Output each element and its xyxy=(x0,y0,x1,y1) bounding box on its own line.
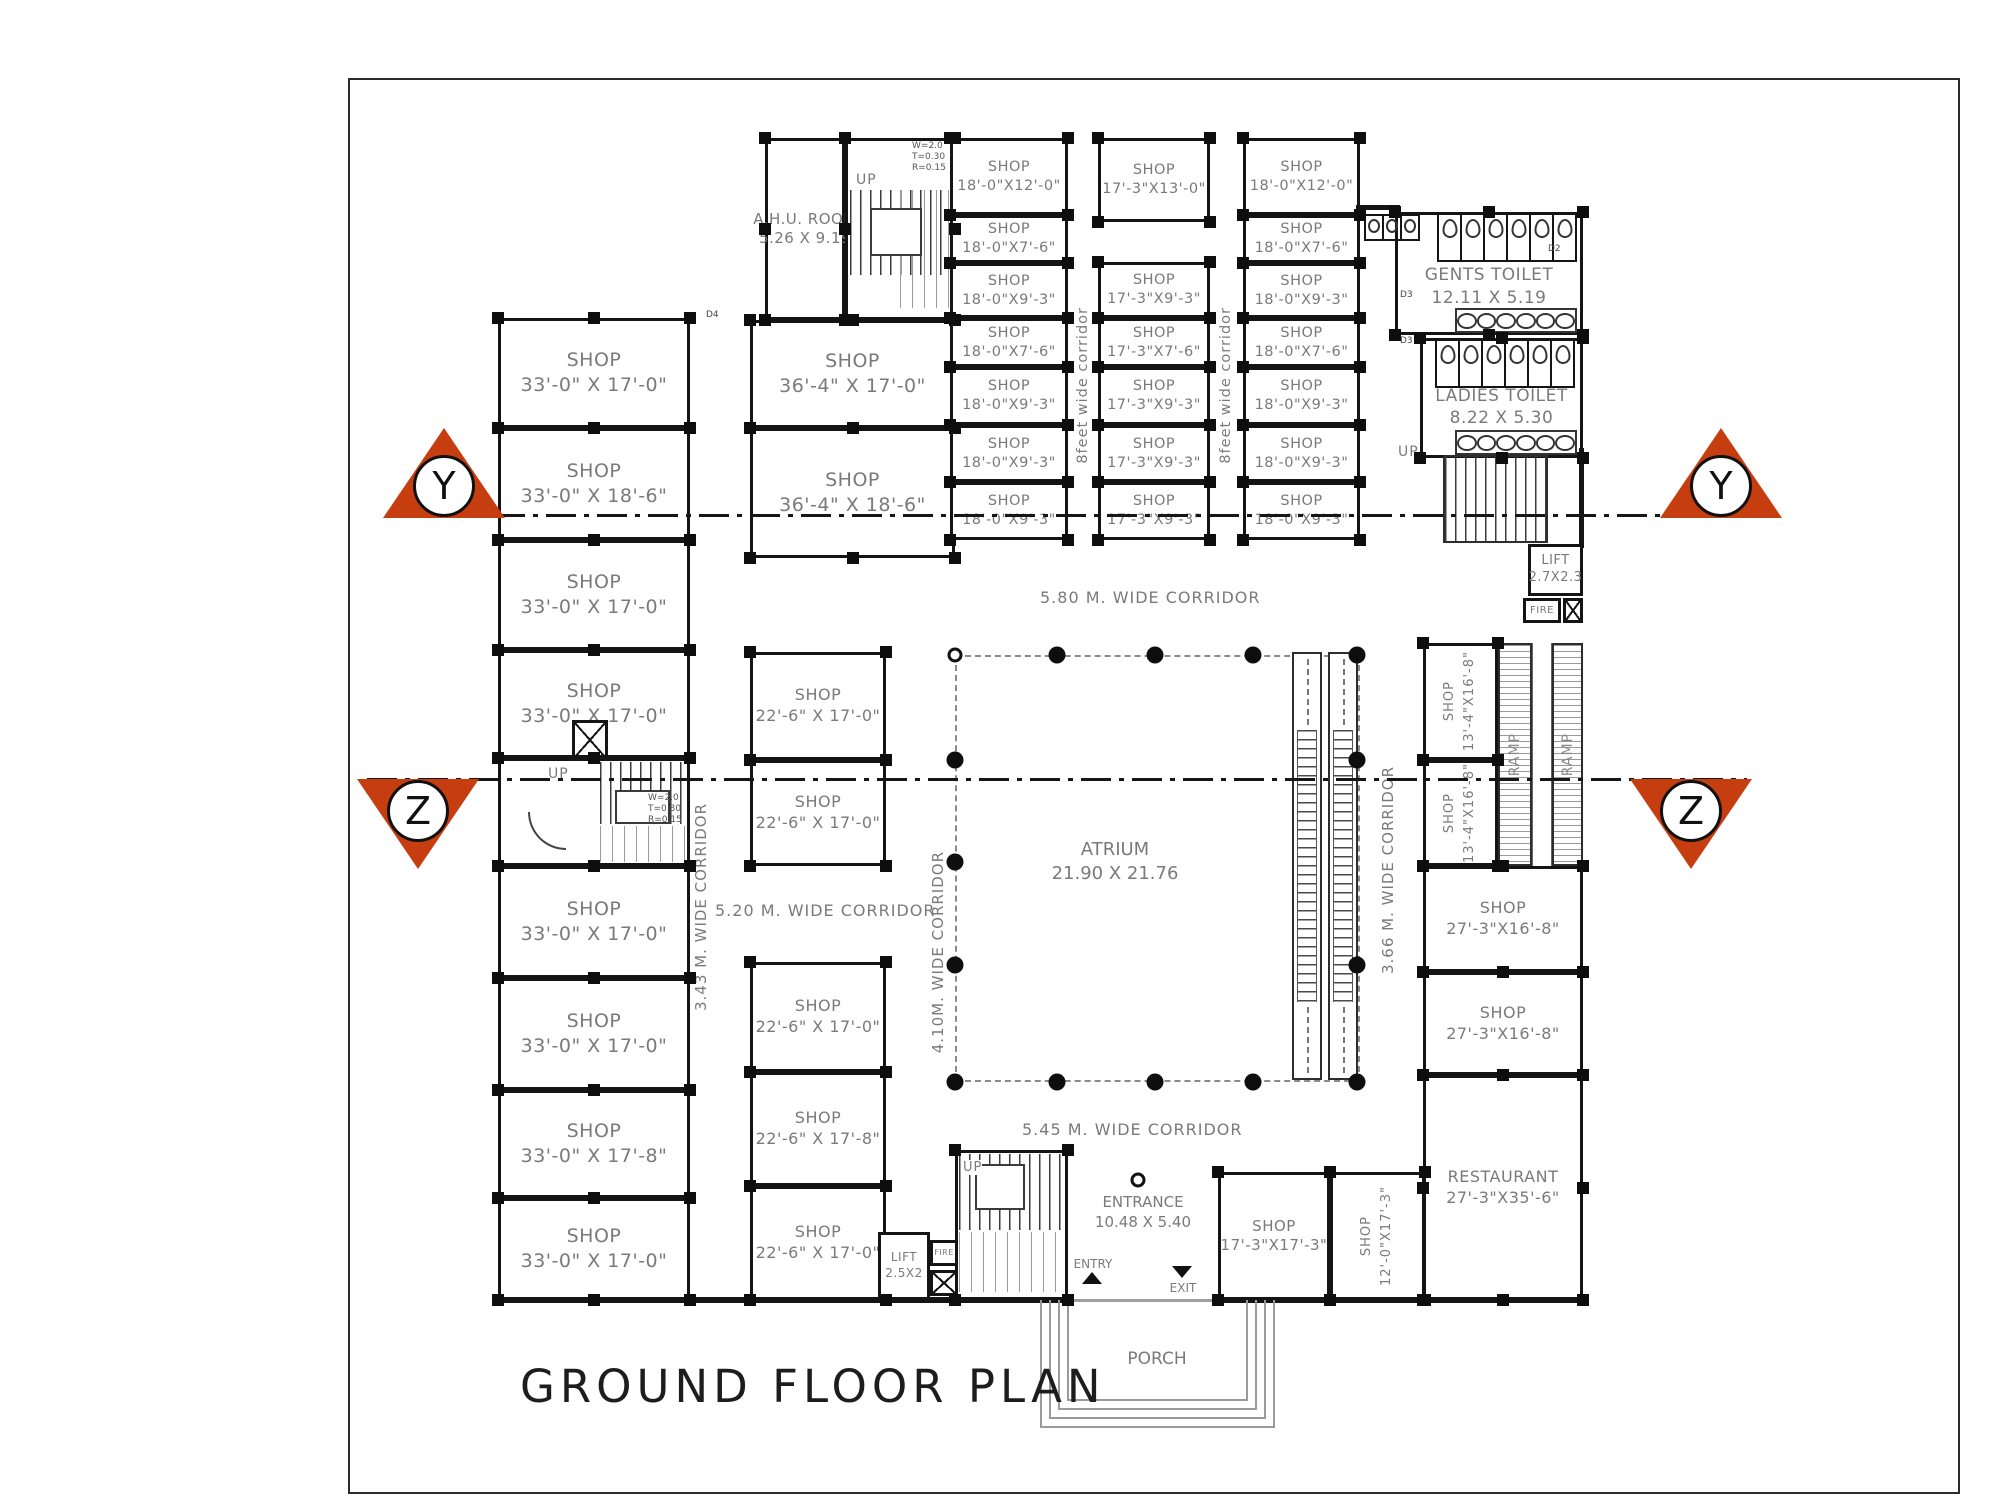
shop-mid-2: SHOP22'-6" X 17'-0" xyxy=(750,760,886,866)
column-marker xyxy=(492,1294,504,1306)
column-marker xyxy=(1389,329,1401,341)
column-marker xyxy=(1062,476,1074,488)
column-marker xyxy=(944,361,956,373)
column-marker xyxy=(759,132,771,144)
column-marker xyxy=(1092,312,1104,324)
column-marker xyxy=(1354,534,1366,546)
column-marker xyxy=(1212,1166,1224,1178)
column-marker xyxy=(1354,361,1366,373)
stair-up-label: UP xyxy=(856,172,877,188)
column-marker xyxy=(744,422,756,434)
shop-bottom-2: SHOP12'-0"X17'-3" xyxy=(1330,1172,1425,1300)
open-column-dot xyxy=(948,648,963,663)
column-marker xyxy=(1417,754,1429,766)
column-marker xyxy=(1324,1166,1336,1178)
ramp-lane-2: RAMP xyxy=(1552,643,1583,866)
shop-17-2: SHOP17'-3"X9'-3" xyxy=(1098,262,1210,318)
shop-18R-4: SHOP18'-0"X7'-6" xyxy=(1243,318,1360,367)
column-marker xyxy=(588,1192,600,1204)
column-marker xyxy=(1577,966,1589,978)
column-marker xyxy=(880,754,892,766)
door-tag: D4 xyxy=(706,310,719,320)
section-line-y xyxy=(393,514,1773,517)
shop-18R-6: SHOP18'-0"X9'-3" xyxy=(1243,425,1360,482)
shop-right-vert-2: SHOP13'-4"X16'-8" xyxy=(1423,760,1498,866)
column-marker xyxy=(944,132,956,144)
escalator-treads xyxy=(1297,730,1317,1002)
column-marker xyxy=(880,1180,892,1192)
corridor-580-label: 5.80 M. WIDE CORRIDOR xyxy=(1040,588,1260,607)
column-marker xyxy=(949,223,961,235)
column-marker xyxy=(744,956,756,968)
column-marker xyxy=(1417,860,1429,872)
fire-shaft-icon xyxy=(1563,598,1583,623)
column-marker xyxy=(492,860,504,872)
shop-17-1: SHOP17'-3"X13'-0" xyxy=(1098,138,1210,222)
column-marker xyxy=(1204,476,1216,488)
column-marker xyxy=(1204,361,1216,373)
column-marker xyxy=(1492,754,1504,766)
entry-arrow-icon xyxy=(1082,1272,1102,1284)
column-marker xyxy=(1237,132,1249,144)
wash-basins xyxy=(1455,308,1577,333)
column-marker xyxy=(1092,216,1104,228)
shop-17-3: SHOP17'-3"X7'-6" xyxy=(1098,318,1210,367)
column-marker xyxy=(944,419,956,431)
column-marker xyxy=(839,132,851,144)
shop-18L-4: SHOP18'-0"X7'-6" xyxy=(950,318,1068,367)
column-marker xyxy=(1092,361,1104,373)
column-marker xyxy=(1324,1294,1336,1306)
column-marker xyxy=(944,312,956,324)
column-marker xyxy=(1419,1294,1431,1306)
column-marker xyxy=(944,209,956,221)
column-marker xyxy=(1212,1294,1224,1306)
escalator-1 xyxy=(1292,652,1322,1080)
column-marker xyxy=(1062,1144,1074,1156)
section-marker-z-right: Z xyxy=(1630,779,1752,869)
column-marker xyxy=(744,552,756,564)
shop-left-7: SHOP33'-0" X 17'-8" xyxy=(498,1090,690,1198)
atrium-column-dot xyxy=(947,1074,964,1091)
column-marker xyxy=(1062,534,1074,546)
column-marker xyxy=(492,972,504,984)
shop-right-vert-1: SHOP13'-4"X16'-8" xyxy=(1423,643,1498,760)
column-marker xyxy=(1497,860,1509,872)
column-marker xyxy=(880,1066,892,1078)
shop-wide-2: SHOP36'-4" X 18'-6" xyxy=(750,428,955,558)
shop-18R-7: SHOP18'-0"X9'-3" xyxy=(1243,482,1360,540)
shop-18R-2: SHOP18'-0"X7'-6" xyxy=(1243,215,1360,263)
column-marker xyxy=(1414,332,1426,344)
porch-label: PORCH xyxy=(1092,1348,1222,1371)
column-marker xyxy=(759,314,771,326)
atrium-column-dot xyxy=(1245,647,1262,664)
column-marker xyxy=(1417,1182,1429,1194)
column-marker xyxy=(1237,312,1249,324)
shop-17-4: SHOP17'-3"X9'-3" xyxy=(1098,367,1210,425)
shop-left-3: SHOP33'-0" X 17'-0" xyxy=(498,540,690,650)
column-marker xyxy=(588,534,600,546)
column-marker xyxy=(1237,361,1249,373)
corridor-366-label: 3.66 M. WIDE CORRIDOR xyxy=(1379,766,1397,974)
column-marker xyxy=(1237,419,1249,431)
fire-shaft-icon xyxy=(930,1270,958,1296)
shop-mid-1: SHOP22'-6" X 17'-0" xyxy=(750,652,886,760)
stair-up-label: UP xyxy=(963,1160,982,1175)
stair-note: W=2.0 T=0.30 R=0.15 xyxy=(648,793,682,825)
shop-wide-1: SHOP36'-4" X 17'-0" xyxy=(750,320,955,428)
shop-17-5: SHOP17'-3"X9'-3" xyxy=(1098,425,1210,482)
column-marker xyxy=(880,860,892,872)
column-marker xyxy=(1419,1166,1431,1178)
column-marker xyxy=(1204,312,1216,324)
section-marker-z-left: Z xyxy=(357,779,479,869)
ramp-divider xyxy=(1532,643,1552,866)
shop-mid-3: SHOP22'-6" X 17'-0" xyxy=(750,962,886,1072)
shop-bottom-1: SHOP17'-3"X17'-3" xyxy=(1218,1172,1330,1300)
corridor-8feet-left-label: 8feet wide corridor xyxy=(1075,307,1091,464)
column-marker xyxy=(944,534,956,546)
column-marker xyxy=(684,312,696,324)
atrium-label: ATRIUM 21.90 X 21.76 xyxy=(1015,838,1215,887)
column-marker xyxy=(588,312,600,324)
column-marker xyxy=(744,754,756,766)
exit-label: EXIT xyxy=(1162,1280,1204,1296)
column-marker xyxy=(1062,257,1074,269)
column-marker xyxy=(744,860,756,872)
column-marker xyxy=(684,644,696,656)
open-column-dot xyxy=(1131,1173,1146,1188)
column-marker xyxy=(880,956,892,968)
column-marker xyxy=(588,422,600,434)
atrium-column-dot xyxy=(1147,1074,1164,1091)
shop-18L-1: SHOP18'-0"X12'-0" xyxy=(950,138,1068,215)
atrium-dims: 21.90 X 21.76 xyxy=(1052,863,1179,884)
column-marker xyxy=(1092,476,1104,488)
column-marker xyxy=(1577,206,1589,218)
column-marker xyxy=(1354,209,1366,221)
atrium-column-dot xyxy=(1349,1074,1366,1091)
column-marker xyxy=(880,646,892,658)
shop-18L-5: SHOP18'-0"X9'-3" xyxy=(950,367,1068,425)
lift-bottom: LIFT2.5X2 xyxy=(878,1232,930,1300)
column-marker xyxy=(588,752,600,764)
column-marker xyxy=(588,1084,600,1096)
column-marker xyxy=(949,1294,961,1306)
atrium-column-dot xyxy=(1049,647,1066,664)
column-marker xyxy=(492,1084,504,1096)
ahu-room: A.H.U. ROOM5.26 X 9.19 xyxy=(765,138,845,320)
shop-mid-5: SHOP22'-6" X 17'-0" xyxy=(750,1186,886,1300)
column-marker xyxy=(1389,206,1401,218)
column-marker xyxy=(492,534,504,546)
shop-18L-3: SHOP18'-0"X9'-3" xyxy=(950,263,1068,318)
column-marker xyxy=(1497,1069,1509,1081)
atrium-column-dot xyxy=(947,854,964,871)
corridor-8feet-right-label: 8feet wide corridor xyxy=(1218,307,1234,464)
stair-toilet-treads xyxy=(1443,455,1548,543)
column-marker xyxy=(839,223,851,235)
fire-room-bottom: FIRE xyxy=(930,1240,958,1266)
column-marker xyxy=(744,1294,756,1306)
column-marker xyxy=(1204,419,1216,431)
column-marker xyxy=(684,752,696,764)
column-marker xyxy=(1062,361,1074,373)
shop-left-2: SHOP33'-0" X 18'-6" xyxy=(498,428,690,540)
column-marker xyxy=(1062,419,1074,431)
entrance-label: ENTRANCE 10.48 X 5.40 xyxy=(1058,1192,1228,1233)
wc-stalls xyxy=(1437,215,1577,262)
fire-room-right: FIRE xyxy=(1523,598,1561,623)
column-marker xyxy=(744,1066,756,1078)
column-marker xyxy=(1237,257,1249,269)
shop-mid-4: SHOP22'-6" X 17'-8" xyxy=(750,1072,886,1186)
shop-left-8: SHOP33'-0" X 17'-0" xyxy=(498,1198,690,1300)
column-marker xyxy=(588,1294,600,1306)
column-marker xyxy=(1062,312,1074,324)
column-marker xyxy=(1577,1294,1589,1306)
restaurant: RESTAURANT27'-3"X35'-6" xyxy=(1423,1075,1583,1300)
column-marker xyxy=(1062,1294,1074,1306)
column-marker xyxy=(588,644,600,656)
column-marker xyxy=(588,860,600,872)
column-marker xyxy=(684,1192,696,1204)
column-marker xyxy=(1237,209,1249,221)
section-marker-y-right: Y xyxy=(1660,428,1782,518)
stair-note: W=2.0 T=0.30 R=0.15 xyxy=(912,141,946,173)
atrium-column-dot xyxy=(1349,957,1366,974)
shop-right27-1: SHOP27'-3"X16'-8" xyxy=(1423,866,1583,972)
column-marker xyxy=(1414,452,1426,464)
ground-floor-plan: ATRIUM 21.90 X 21.76 5.80 M. WIDE CORRID… xyxy=(0,0,2000,1500)
corridor-545-label: 5.45 M. WIDE CORRIDOR xyxy=(1022,1120,1242,1139)
column-marker xyxy=(847,422,859,434)
column-marker xyxy=(744,646,756,658)
lift-right: LIFT2.7X2.3 xyxy=(1528,544,1583,596)
column-marker xyxy=(1204,256,1216,268)
atrium-column-dot xyxy=(1245,1074,1262,1091)
column-marker xyxy=(1092,132,1104,144)
column-marker xyxy=(1092,419,1104,431)
column-marker xyxy=(684,860,696,872)
column-marker xyxy=(944,257,956,269)
column-marker xyxy=(684,972,696,984)
shop-left-1: SHOP33'-0" X 17'-0" xyxy=(498,318,690,428)
column-marker xyxy=(1354,476,1366,488)
door-tag: D3 xyxy=(1400,290,1413,300)
column-marker xyxy=(1577,860,1589,872)
column-marker xyxy=(1354,257,1366,269)
door-tag: D2 xyxy=(1548,244,1561,254)
column-marker xyxy=(492,644,504,656)
door-tag: D3 xyxy=(1400,336,1413,346)
column-marker xyxy=(1417,1069,1429,1081)
column-marker xyxy=(949,1144,961,1156)
shop-17-6: SHOP17'-3"X9'-3" xyxy=(1098,482,1210,540)
atrium-column-dot xyxy=(1147,647,1164,664)
column-marker xyxy=(759,223,771,235)
escalator-2 xyxy=(1328,652,1358,1080)
entry-label: ENTRY xyxy=(1068,1256,1118,1272)
shop-left-5: SHOP33'-0" X 17'-0" xyxy=(498,866,690,978)
column-marker xyxy=(1496,332,1508,344)
column-marker xyxy=(1237,534,1249,546)
shop-left-6: SHOP33'-0" X 17'-0" xyxy=(498,978,690,1090)
atrium-column-dot xyxy=(1349,647,1366,664)
shop-18R-3: SHOP18'-0"X9'-3" xyxy=(1243,263,1360,318)
drawing-title: GROUND FLOOR PLAN xyxy=(520,1360,1020,1413)
column-marker xyxy=(492,752,504,764)
column-marker xyxy=(880,1294,892,1306)
atrium-name: ATRIUM xyxy=(1081,839,1149,860)
column-marker xyxy=(1417,637,1429,649)
column-marker xyxy=(684,1084,696,1096)
atrium-column-dot xyxy=(947,752,964,769)
column-marker xyxy=(1204,132,1216,144)
column-marker xyxy=(1496,452,1508,464)
section-line-z xyxy=(367,778,1747,781)
section-marker-y-left: Y xyxy=(383,428,505,518)
column-marker xyxy=(492,312,504,324)
corridor-410-label: 4.10M. WIDE CORRIDOR xyxy=(929,851,947,1053)
column-marker xyxy=(588,972,600,984)
shop-18L-6: SHOP18'-0"X9'-3" xyxy=(950,425,1068,482)
column-marker xyxy=(1092,256,1104,268)
atrium-column-dot xyxy=(947,957,964,974)
column-marker xyxy=(1483,206,1495,218)
corridor-520-label: 5.20 M. WIDE CORRIDOR xyxy=(715,901,930,920)
column-marker xyxy=(1354,419,1366,431)
shop-18R-1: SHOP18'-0"X12'-0" xyxy=(1243,138,1360,215)
column-marker xyxy=(944,476,956,488)
column-marker xyxy=(1497,966,1509,978)
column-marker xyxy=(1577,452,1589,464)
column-marker xyxy=(1354,132,1366,144)
column-marker xyxy=(1577,1182,1589,1194)
column-marker xyxy=(684,534,696,546)
column-marker xyxy=(684,422,696,434)
column-marker xyxy=(1092,534,1104,546)
shop-18L-7: SHOP18'-0"X9'-3" xyxy=(950,482,1068,540)
column-marker xyxy=(744,1180,756,1192)
column-marker xyxy=(1062,209,1074,221)
column-marker xyxy=(1204,216,1216,228)
column-marker xyxy=(847,552,859,564)
column-marker xyxy=(744,314,756,326)
column-marker xyxy=(684,1294,696,1306)
column-marker xyxy=(1492,637,1504,649)
column-marker xyxy=(492,1192,504,1204)
column-marker xyxy=(1577,332,1589,344)
atrium-column-dot xyxy=(1049,1074,1066,1091)
column-marker xyxy=(1577,1069,1589,1081)
urinals xyxy=(1364,214,1420,241)
atrium-column-dot xyxy=(1349,752,1366,769)
column-marker xyxy=(1204,534,1216,546)
wash-basins xyxy=(1455,430,1577,455)
column-marker xyxy=(1483,329,1495,341)
column-marker xyxy=(1237,476,1249,488)
column-marker xyxy=(1417,966,1429,978)
column-marker xyxy=(949,552,961,564)
shop-18R-5: SHOP18'-0"X9'-3" xyxy=(1243,367,1360,425)
shop-18L-2: SHOP18'-0"X7'-6" xyxy=(950,215,1068,263)
column-marker xyxy=(1062,132,1074,144)
exit-arrow-icon xyxy=(1172,1266,1192,1278)
column-marker xyxy=(1497,1294,1509,1306)
wc-stalls xyxy=(1435,341,1575,388)
column-marker xyxy=(1354,312,1366,324)
shop-right27-2: SHOP27'-3"X16'-8" xyxy=(1423,972,1583,1075)
column-marker xyxy=(839,314,851,326)
